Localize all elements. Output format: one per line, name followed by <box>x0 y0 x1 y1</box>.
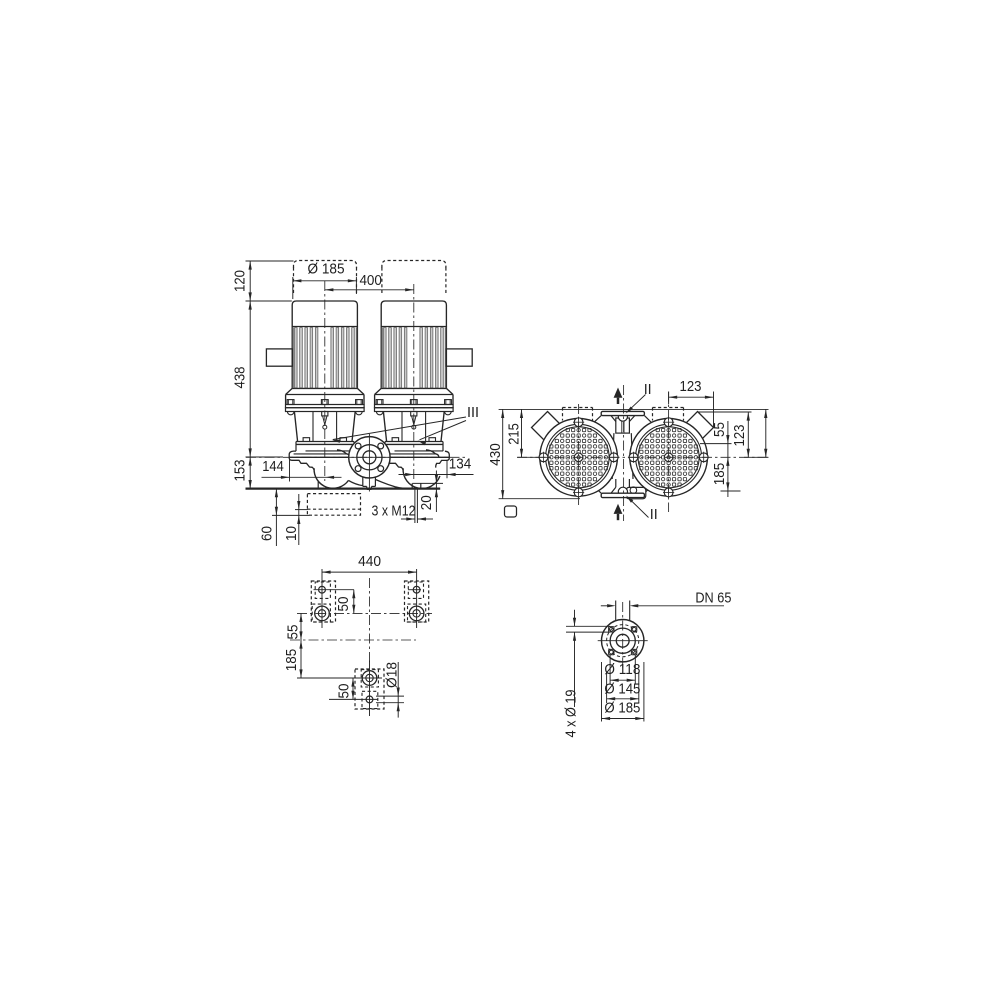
svg-text:144: 144 <box>262 459 284 475</box>
svg-text:Ø 185: Ø 185 <box>604 700 640 716</box>
svg-text:430: 430 <box>488 443 504 466</box>
svg-text:185: 185 <box>712 463 728 486</box>
svg-text:II: II <box>650 507 658 523</box>
svg-text:3 x M12: 3 x M12 <box>372 503 416 519</box>
svg-text:Ø18: Ø18 <box>385 662 401 688</box>
svg-text:DN 65: DN 65 <box>695 590 731 606</box>
svg-text:50: 50 <box>337 684 353 699</box>
svg-text:440: 440 <box>358 554 381 570</box>
svg-text:III: III <box>467 405 479 421</box>
svg-text:55: 55 <box>712 422 728 437</box>
svg-text:60: 60 <box>260 526 276 541</box>
svg-text:Ø 185: Ø 185 <box>308 262 345 278</box>
svg-text:185: 185 <box>284 649 300 672</box>
svg-text:123: 123 <box>680 379 702 395</box>
svg-text:4 x Ø 19: 4 x Ø 19 <box>564 690 580 738</box>
svg-text:215: 215 <box>506 423 522 445</box>
svg-text:120: 120 <box>233 270 249 292</box>
svg-text:153: 153 <box>233 460 249 482</box>
svg-text:134: 134 <box>449 456 472 472</box>
svg-text:55: 55 <box>286 625 302 640</box>
svg-text:123: 123 <box>732 425 748 447</box>
svg-text:438: 438 <box>233 367 249 389</box>
svg-text:Ø 118: Ø 118 <box>604 662 640 678</box>
svg-text:Ø 145: Ø 145 <box>604 682 640 698</box>
svg-text:20: 20 <box>419 495 435 510</box>
svg-text:50: 50 <box>336 597 352 612</box>
svg-text:10: 10 <box>284 526 300 541</box>
svg-text:400: 400 <box>359 273 382 289</box>
